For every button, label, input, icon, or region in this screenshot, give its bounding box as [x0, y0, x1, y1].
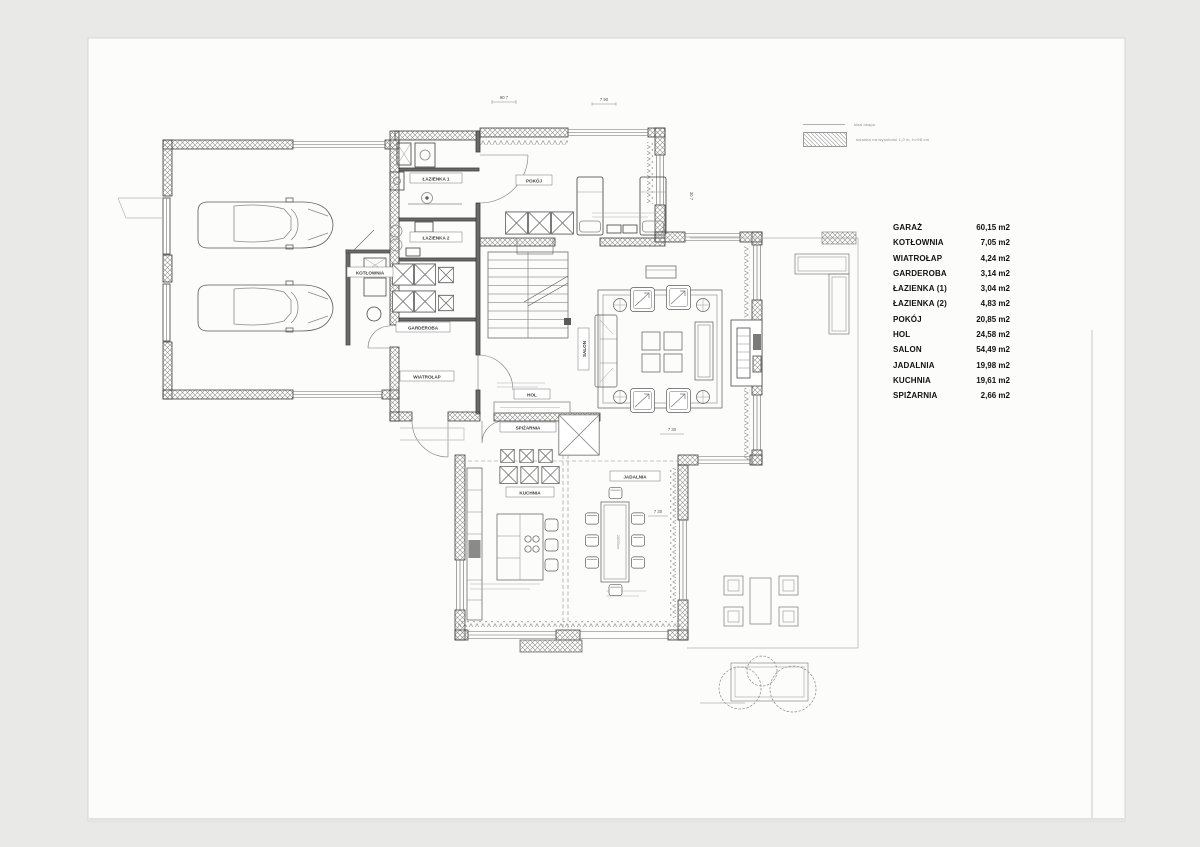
label-lazienka2: ŁAZIENKA 2	[410, 232, 462, 242]
legend: ślad okapu ścianka na wysokość 1,0 m, h=…	[803, 122, 929, 152]
legend-label: ślad okapu	[854, 122, 875, 127]
label-jadalnia: JADALNIA	[610, 471, 660, 481]
table-row: JADALNIA19,98 m2	[893, 361, 1010, 376]
room-name: SALON	[893, 345, 922, 354]
planter-wall	[822, 232, 856, 244]
svg-text:HOL: HOL	[527, 392, 537, 397]
svg-text:POKÓJ: POKÓJ	[526, 176, 543, 183]
room-area-table: GARAŻ60,15 m2 KOTŁOWNIA7,05 m2 WIATROŁAP…	[893, 223, 1010, 407]
svg-text:7 30: 7 30	[668, 427, 677, 432]
svg-text:KUCHNIA: KUCHNIA	[519, 490, 541, 495]
room-area: 60,15 m2	[976, 223, 1010, 232]
legend-label: ścianka na wysokość 1,0 m, h=98 cm	[856, 137, 929, 142]
room-area: 3,14 m2	[981, 269, 1010, 278]
label-salon: SALON	[578, 328, 589, 370]
floor-plan-drawing: KOTŁOWNIA ŁAZIENKA 1 ŁAZIENKA 2 GARDEROB…	[0, 0, 1200, 847]
room-name: GARDEROBA	[893, 269, 947, 278]
table-row: WIATROŁAP4,24 m2	[893, 254, 1010, 269]
hatch-sample-icon	[803, 132, 847, 147]
label-lazienka1: ŁAZIENKA 1	[410, 173, 462, 183]
table-row: HOL24,58 m2	[893, 330, 1010, 345]
room-area: 4,83 m2	[981, 299, 1010, 308]
room-area: 7,05 m2	[981, 238, 1010, 247]
room-name: SPIŻARNIA	[893, 391, 937, 400]
label-wiatrolap: WIATROŁAP	[400, 371, 454, 381]
svg-text:90 7: 90 7	[500, 95, 509, 100]
room-area: 19,98 m2	[976, 361, 1010, 370]
table-row: ŁAZIENKA (2)4,83 m2	[893, 299, 1010, 314]
svg-text:SALON: SALON	[582, 340, 587, 357]
line-sample-icon	[803, 124, 845, 125]
scanned-floor-plan-page: KOTŁOWNIA ŁAZIENKA 1 ŁAZIENKA 2 GARDEROB…	[0, 0, 1200, 847]
terrace-step	[520, 640, 582, 652]
svg-text:SPIŻARNIA: SPIŻARNIA	[516, 424, 541, 430]
room-name: KUCHNIA	[893, 376, 931, 385]
table-row: KOTŁOWNIA7,05 m2	[893, 238, 1010, 253]
table-row: POKÓJ20,85 m2	[893, 315, 1010, 330]
label-hol: HOL	[514, 389, 550, 399]
room-area: 54,49 m2	[976, 345, 1010, 354]
table-row: SPIŻARNIA2,66 m2	[893, 391, 1010, 406]
label-spizarnia: SPIŻARNIA	[500, 422, 556, 432]
svg-text:GARDEROBA: GARDEROBA	[408, 325, 439, 330]
room-area: 20,85 m2	[976, 315, 1010, 324]
room-area: 4,24 m2	[981, 254, 1010, 263]
fireplace	[731, 320, 762, 386]
garage-door-1	[163, 198, 170, 254]
table-row: ŁAZIENKA (1)3,04 m2	[893, 284, 1010, 299]
room-area: 2,66 m2	[981, 391, 1010, 400]
room-name: POKÓJ	[893, 315, 922, 324]
room-area: 3,04 m2	[981, 284, 1010, 293]
garage-door-2	[163, 284, 170, 341]
room-name: WIATROŁAP	[893, 254, 942, 263]
table-row: GARDEROBA3,14 m2	[893, 269, 1010, 284]
legend-item-eaves: ślad okapu	[803, 122, 929, 127]
room-name: GARAŻ	[893, 223, 922, 232]
legend-item-halfwall: ścianka na wysokość 1,0 m, h=98 cm	[803, 132, 929, 147]
svg-text:KOTŁOWNIA: KOTŁOWNIA	[356, 270, 385, 275]
room-name: HOL	[893, 330, 910, 339]
table-row: KUCHNIA19,61 m2	[893, 376, 1010, 391]
svg-text:240/90cm: 240/90cm	[616, 535, 620, 549]
label-kotlownia: KOTŁOWNIA	[347, 267, 393, 277]
room-area: 19,61 m2	[976, 376, 1010, 385]
label-pokoj: POKÓJ	[516, 175, 552, 185]
label-kuchnia: KUCHNIA	[506, 487, 554, 497]
svg-text:30 7: 30 7	[689, 192, 694, 201]
table-row: GARAŻ60,15 m2	[893, 223, 1010, 238]
svg-text:ŁAZIENKA 2: ŁAZIENKA 2	[423, 235, 450, 240]
paper-sheet	[88, 38, 1125, 821]
room-name: JADALNIA	[893, 361, 935, 370]
svg-text:WIATROŁAP: WIATROŁAP	[413, 374, 440, 379]
svg-text:JADALNIA: JADALNIA	[623, 474, 647, 479]
table-row: SALON54,49 m2	[893, 345, 1010, 360]
room-area: 24,58 m2	[976, 330, 1010, 339]
room-name: ŁAZIENKA (1)	[893, 284, 947, 293]
svg-text:7 90: 7 90	[600, 97, 609, 102]
label-garderoba: GARDEROBA	[396, 322, 450, 332]
svg-text:ŁAZIENKA 1: ŁAZIENKA 1	[423, 176, 450, 181]
svg-text:7 30: 7 30	[654, 509, 663, 514]
room-name: KOTŁOWNIA	[893, 238, 944, 247]
room-name: ŁAZIENKA (2)	[893, 299, 947, 308]
